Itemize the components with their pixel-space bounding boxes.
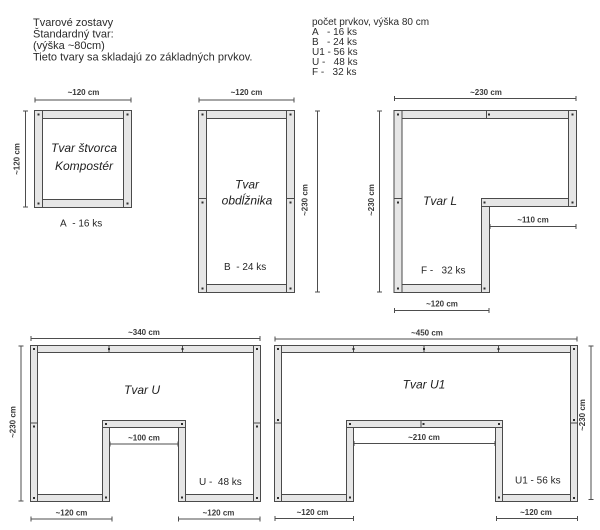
- svg-text:A - 16 ks: A - 16 ks: [60, 219, 102, 230]
- svg-text:~230 cm: ~230 cm: [367, 184, 376, 216]
- svg-text:Kompostér: Kompostér: [55, 159, 114, 173]
- svg-text:F - 32 ks: F - 32 ks: [312, 67, 356, 78]
- svg-text:~100 cm: ~100 cm: [128, 434, 160, 443]
- svg-text:~120 cm: ~120 cm: [203, 509, 235, 518]
- svg-text:Tvar: Tvar: [235, 178, 260, 192]
- svg-text:Tvar štvorca: Tvar štvorca: [51, 141, 117, 155]
- svg-text:Tvar U1: Tvar U1: [403, 378, 446, 392]
- svg-text:obdĺžnika: obdĺžnika: [222, 193, 273, 208]
- svg-text:~210 cm: ~210 cm: [408, 433, 440, 442]
- svg-text:~450 cm: ~450 cm: [411, 329, 443, 338]
- svg-text:~230 cm: ~230 cm: [9, 406, 18, 438]
- svg-text:B - 24 ks: B - 24 ks: [224, 262, 266, 273]
- svg-text:~120 cm: ~120 cm: [520, 508, 552, 517]
- svg-text:U1 - 56 ks: U1 - 56 ks: [515, 476, 561, 487]
- svg-text:~230 cm: ~230 cm: [301, 184, 310, 216]
- svg-text:Tvarové zostavy: Tvarové zostavy: [33, 17, 114, 29]
- svg-text:~120 cm: ~120 cm: [231, 88, 263, 97]
- svg-text:F - 32 ks: F - 32 ks: [421, 266, 465, 277]
- svg-text:~120 cm: ~120 cm: [56, 509, 88, 518]
- svg-text:~120 cm: ~120 cm: [68, 88, 100, 97]
- svg-text:~230 cm: ~230 cm: [470, 88, 502, 97]
- svg-text:Štandardný tvar:: Štandardný tvar:: [33, 28, 114, 41]
- svg-text:Tvar L: Tvar L: [423, 194, 457, 208]
- svg-text:(výška ~80cm): (výška ~80cm): [33, 40, 105, 52]
- svg-text:Tvar U: Tvar U: [124, 383, 160, 397]
- svg-text:Tieto tvary sa skladajú zo zák: Tieto tvary sa skladajú zo základných pr…: [33, 52, 252, 64]
- svg-text:~120 cm: ~120 cm: [13, 143, 22, 175]
- svg-text:~120 cm: ~120 cm: [426, 300, 458, 309]
- svg-text:~340 cm: ~340 cm: [128, 328, 160, 337]
- svg-text:~120 cm: ~120 cm: [297, 508, 329, 517]
- svg-text:~230 cm: ~230 cm: [578, 399, 587, 431]
- svg-text:~110 cm: ~110 cm: [517, 216, 548, 225]
- svg-text:U - 48 ks: U - 48 ks: [199, 477, 242, 488]
